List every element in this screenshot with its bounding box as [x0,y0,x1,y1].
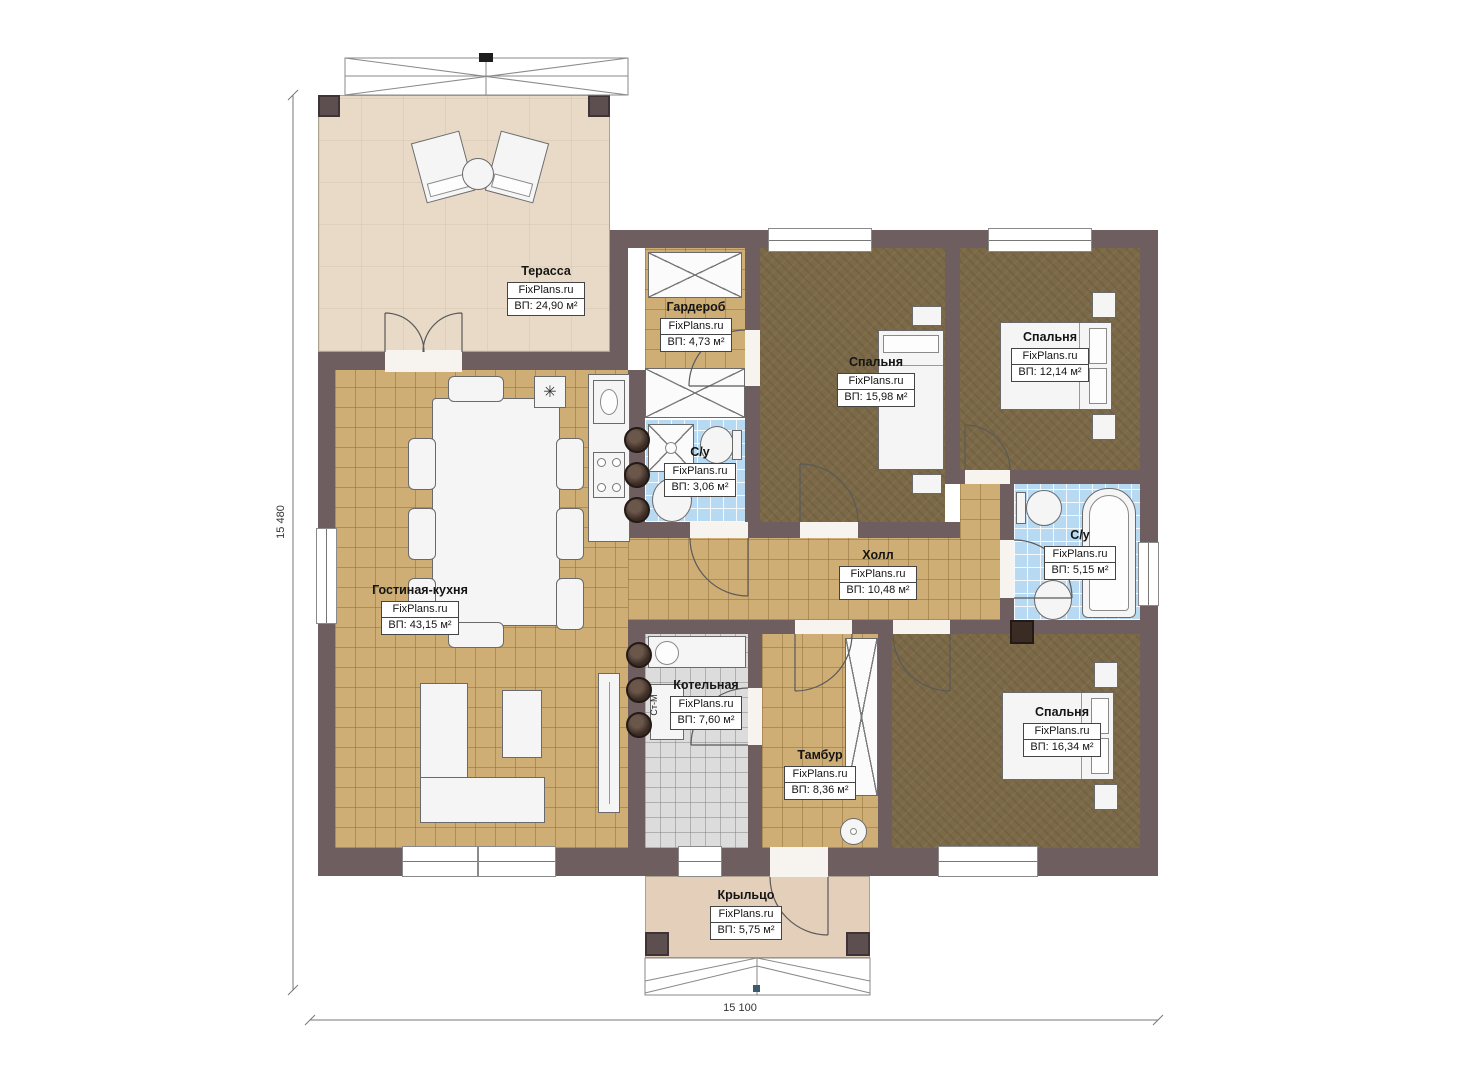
vent-pipe [626,642,652,668]
brand-text: FixPlans.ru [840,567,915,584]
room-area: ВП: 15,98 м² [838,390,913,406]
wall-house-left-upper [610,230,628,370]
window-living-bottom-2 [478,846,556,877]
room-name: Гардероб [646,300,746,316]
room-name: Спальня [1012,705,1112,721]
room-info-box: FixPlans.ru ВП: 10,48 м² [839,566,916,601]
brand-text: FixPlans.ru [508,283,583,300]
room-name: Спальня [826,355,926,371]
bathroom-1-door-opening [690,522,748,538]
room-area: ВП: 43,15 м² [382,618,457,634]
sink-2 [1034,580,1072,620]
room-area: ВП: 24,90 м² [508,299,583,315]
room-label-boiler-room: Котельная FixPlans.ru ВП: 7,60 м² [656,678,756,730]
vestibule-door-opening [795,620,852,634]
room-name: С/у [1035,528,1125,544]
cooker-hood: ✳ [534,376,566,408]
room-name: Гостиная-кухня [355,583,485,599]
window-boiler [678,846,722,877]
bedroom-1-door-opening [800,522,858,538]
room-name: Крыльцо [696,888,796,904]
wardrobe-cabinet-bottom [645,368,745,418]
dining-chair [408,438,436,490]
water-heater [840,818,867,845]
brand-text: FixPlans.ru [838,374,913,391]
window-bedroom-3 [938,846,1038,877]
brand-text: FixPlans.ru [1024,724,1099,741]
room-area: ВП: 3,06 м² [665,480,734,496]
room-name: Спальня [1000,330,1100,346]
porch-column-left [645,932,669,956]
nightstand [1092,292,1116,318]
vent-pipe [624,462,650,488]
window-living-left [316,528,337,624]
wall-wardrobe-bedroom1 [745,248,760,538]
cooker-hood-icon: ✳ [543,382,556,402]
sofa-seat-section [420,777,545,823]
room-area: ВП: 4,73 м² [661,335,730,351]
dining-chair [556,578,584,630]
wall-hall-bottomrow [628,620,1140,634]
toilet-2 [1026,490,1062,526]
nightstand [1094,662,1118,688]
room-info-box: FixPlans.ru ВП: 3,06 м² [664,463,735,498]
hall-spur-floor [960,484,1000,620]
room-name: Тамбур [770,748,870,764]
room-label-wardrobe: Гардероб FixPlans.ru ВП: 4,73 м² [646,300,746,352]
room-name: Холл [828,548,928,564]
room-label-bedroom-1: Спальня FixPlans.ru ВП: 15,98 м² [826,355,926,407]
room-info-box: FixPlans.ru ВП: 24,90 м² [507,282,584,317]
brand-text: FixPlans.ru [661,319,730,336]
dining-chair [408,508,436,560]
bedroom-2-door-opening [965,470,1010,484]
coffee-table [502,690,542,758]
room-info-box: FixPlans.ru ВП: 4,73 м² [660,318,731,353]
truss-anchor [479,53,493,62]
entrance-door-opening [770,847,828,877]
room-info-box: FixPlans.ru ВП: 5,75 м² [710,906,781,941]
hall-floor [628,538,1000,620]
room-info-box: FixPlans.ru ВП: 15,98 м² [837,373,914,408]
room-area: ВП: 5,75 м² [711,923,780,939]
window-living-bottom-1 [402,846,478,877]
brand-text: FixPlans.ru [665,464,734,481]
terrace-column-left [318,95,340,117]
room-label-bedroom-2: Спальня FixPlans.ru ВП: 12,14 м² [1000,330,1100,382]
brand-text: FixPlans.ru [1012,349,1087,366]
room-name: Терасса [496,264,596,280]
wall-terrace-living [318,352,628,370]
vent-pipe [624,427,650,453]
nightstand [912,474,942,494]
dining-chair [448,376,504,402]
room-label-porch: Крыльцо FixPlans.ru ВП: 5,75 м² [696,888,796,940]
nightstand [912,306,942,326]
nightstand [1092,414,1116,440]
toilet-2-tank [1016,492,1026,524]
wall-bedroom1-bedroom2 [945,248,960,484]
porch-steps [645,958,870,995]
brand-text: FixPlans.ru [785,767,854,784]
room-name: Котельная [656,678,756,694]
brand-text: FixPlans.ru [711,907,780,924]
dining-chair [556,438,584,490]
room-info-box: FixPlans.ru ВП: 5,15 м² [1044,546,1115,581]
floor-plan: ✳ Ст-М [0,0,1474,1080]
bathroom-2-door-opening [1000,540,1014,598]
room-label-hall: Холл FixPlans.ru ВП: 10,48 м² [828,548,928,600]
wall-bedrooms-hall [760,522,960,538]
room-label-terrace: Терасса FixPlans.ru ВП: 24,90 м² [496,264,596,316]
terrace-table [462,158,494,190]
brand-text: FixPlans.ru [1045,547,1114,564]
room-info-box: FixPlans.ru ВП: 16,34 м² [1023,723,1100,758]
room-area: ВП: 10,48 м² [840,583,915,599]
room-info-box: FixPlans.ru ВП: 12,14 м² [1011,348,1088,383]
dining-chair [556,508,584,560]
window-bedroom-2 [988,228,1092,252]
room-area: ВП: 16,34 м² [1024,740,1099,756]
terrace-column-right [588,95,610,117]
nightstand [1094,784,1118,810]
kitchen-sink [593,380,625,424]
room-area: ВП: 8,36 м² [785,783,854,799]
brand-text: FixPlans.ru [671,697,740,714]
room-label-bathroom-1: С/у FixPlans.ru ВП: 3,06 м² [655,445,745,497]
bedroom-3-door-opening [893,620,950,634]
room-info-box: FixPlans.ru ВП: 43,15 м² [381,601,458,636]
roof-truss-top [345,53,628,95]
terrace-door-opening [385,350,462,372]
vent-pipe [624,497,650,523]
room-label-bedroom-3: Спальня FixPlans.ru ВП: 16,34 м² [1012,705,1112,757]
room-area: ВП: 12,14 м² [1012,365,1087,381]
room-label-living-kitchen: Гостиная-кухня FixPlans.ru ВП: 43,15 м² [355,583,485,635]
room-name: С/у [655,445,745,461]
kitchen-stove [593,452,625,498]
dimension-bottom-label: 15 100 [695,1002,785,1014]
brand-text: FixPlans.ru [382,602,457,619]
window-bathroom-2 [1138,542,1159,606]
wardrobe-door-opening [745,330,760,386]
tv-console [598,673,620,813]
node-marker [753,985,760,992]
dimension-left-label: 15 480 [275,487,287,557]
room-label-bathroom-2: С/у FixPlans.ru ВП: 5,15 м² [1035,528,1125,580]
room-area: ВП: 5,15 м² [1045,563,1114,579]
window-bedroom-1 [768,228,872,252]
room-info-box: FixPlans.ru ВП: 8,36 м² [784,766,855,801]
room-label-vestibule: Тамбур FixPlans.ru ВП: 8,36 м² [770,748,870,800]
room-area: ВП: 7,60 м² [671,713,740,729]
wardrobe-cabinet-top [648,252,742,298]
duct-shaft [1010,620,1034,644]
room-info-box: FixPlans.ru ВП: 7,60 м² [670,696,741,731]
porch-column-right [846,932,870,956]
boiler-counter [648,636,746,668]
wall-vestibule-bedroom3 [878,634,892,848]
